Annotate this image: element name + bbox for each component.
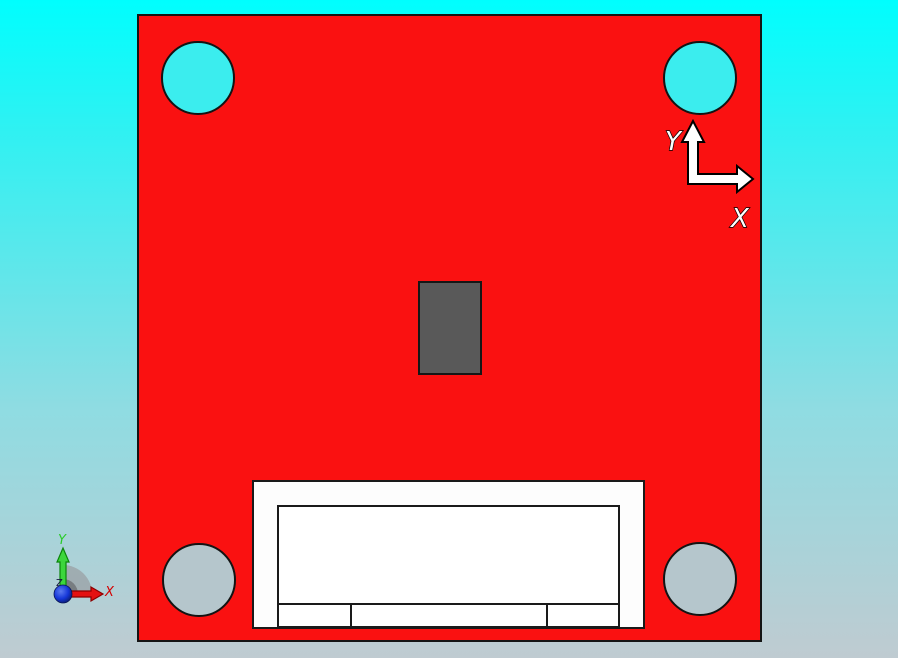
connector-body[interactable] bbox=[252, 480, 645, 629]
connector-contact-strip[interactable] bbox=[277, 603, 620, 628]
view-axis-indicator: Y X bbox=[655, 112, 765, 240]
xy-axis-arrows bbox=[682, 121, 753, 192]
connector-contact-cell[interactable] bbox=[279, 605, 350, 626]
triad-x-label: X bbox=[104, 585, 115, 600]
mounting-hole-top-right[interactable] bbox=[663, 41, 737, 115]
connector-contact-cell[interactable] bbox=[548, 605, 618, 626]
axis-y-label: Y bbox=[665, 127, 683, 157]
mounting-hole-bottom-right[interactable] bbox=[663, 542, 737, 616]
mounting-hole-bottom-left[interactable] bbox=[162, 543, 236, 617]
axis-x-label: X bbox=[729, 204, 750, 234]
triad-y-label: Y bbox=[58, 533, 67, 548]
origin-triad: Y Z X bbox=[43, 528, 123, 612]
triad-origin-sphere bbox=[54, 585, 72, 603]
pcb-board-face[interactable]: Y X bbox=[137, 14, 762, 642]
mounting-hole-top-left[interactable] bbox=[161, 41, 235, 115]
center-component-face[interactable] bbox=[418, 281, 482, 375]
connector-contact-cell[interactable] bbox=[350, 605, 548, 626]
cad-viewport[interactable]: Y X Y Z X bbox=[0, 0, 898, 658]
connector-opening[interactable] bbox=[277, 505, 620, 603]
